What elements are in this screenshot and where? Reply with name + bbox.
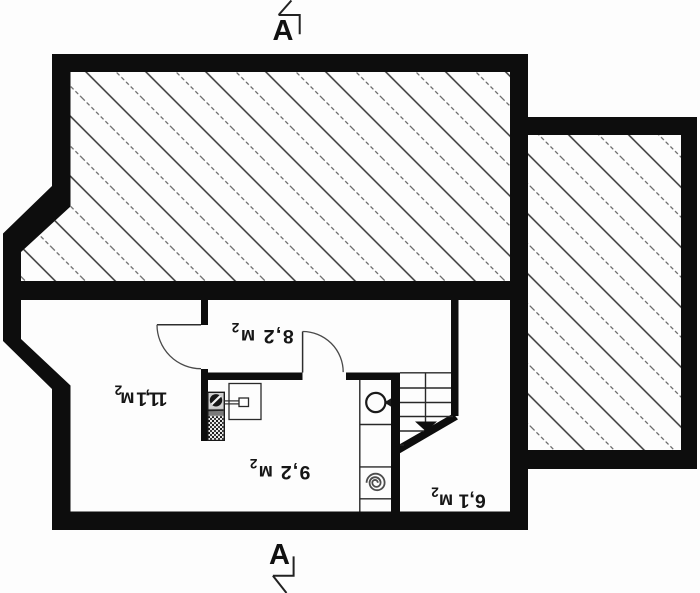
svg-text:A: A <box>273 15 294 47</box>
svg-text:A: A <box>269 539 290 571</box>
